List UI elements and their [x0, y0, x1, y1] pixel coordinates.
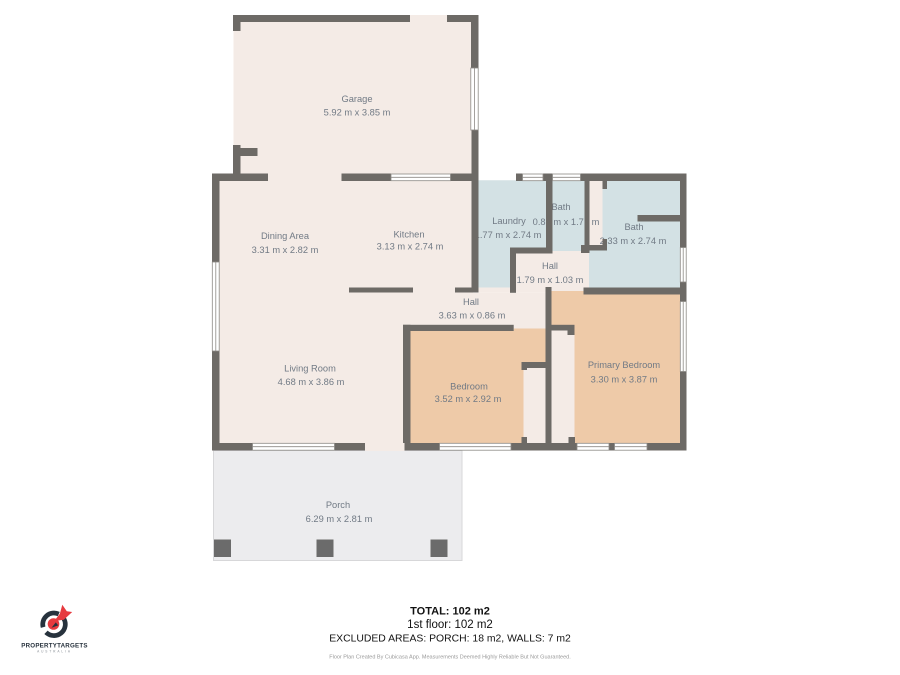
svg-text:Bath: Bath [624, 222, 643, 232]
svg-text:1st floor: 102 m2: 1st floor: 102 m2 [407, 619, 493, 631]
svg-text:AUSTRALIA: AUSTRALIA [37, 650, 72, 654]
svg-text:0.85 m x 1.71 m: 0.85 m x 1.71 m [533, 217, 600, 227]
svg-text:5.92 m x 3.85 m: 5.92 m x 3.85 m [324, 108, 391, 118]
svg-text:3.52 m x 2.92 m: 3.52 m x 2.92 m [435, 394, 502, 404]
svg-text:TOTAL: 102 m2: TOTAL: 102 m2 [410, 606, 490, 618]
svg-text:1.79 m x 1.03 m: 1.79 m x 1.03 m [517, 275, 584, 285]
svg-text:1.77 m x 2.74 m: 1.77 m x 2.74 m [475, 230, 542, 240]
svg-text:Kitchen: Kitchen [393, 230, 424, 240]
svg-text:Hall: Hall [542, 261, 558, 271]
svg-text:EXCLUDED AREAS: PORCH: 18 m2,: EXCLUDED AREAS: PORCH: 18 m2, WALLS: 7 m… [329, 634, 571, 645]
svg-text:Floor Plan Created By Cubicasa: Floor Plan Created By Cubicasa App. Meas… [329, 655, 571, 661]
svg-text:4.68 m x 3.86 m: 4.68 m x 3.86 m [278, 377, 345, 387]
svg-text:Bedroom: Bedroom [450, 382, 488, 392]
svg-text:Living Room: Living Room [284, 364, 336, 374]
svg-text:Hall: Hall [463, 297, 479, 307]
svg-text:Dining Area: Dining Area [261, 231, 310, 241]
svg-text:6.29 m x 2.81 m: 6.29 m x 2.81 m [306, 514, 373, 524]
svg-text:Primary Bedroom: Primary Bedroom [588, 360, 661, 370]
svg-text:2.33 m x 2.74 m: 2.33 m x 2.74 m [600, 236, 667, 246]
svg-text:Garage: Garage [341, 94, 372, 104]
svg-text:3.31 m x 2.82 m: 3.31 m x 2.82 m [252, 245, 319, 255]
svg-text:Bath: Bath [551, 202, 570, 212]
svg-text:Laundry: Laundry [492, 216, 526, 226]
svg-text:3.30 m x 3.87 m: 3.30 m x 3.87 m [591, 375, 658, 385]
svg-text:3.13 m x 2.74 m: 3.13 m x 2.74 m [377, 242, 444, 252]
svg-text:Porch: Porch [326, 500, 350, 510]
svg-text:3.63 m x 0.86 m: 3.63 m x 0.86 m [439, 311, 506, 321]
svg-text:PROPERTYTARGETS: PROPERTYTARGETS [21, 643, 87, 650]
